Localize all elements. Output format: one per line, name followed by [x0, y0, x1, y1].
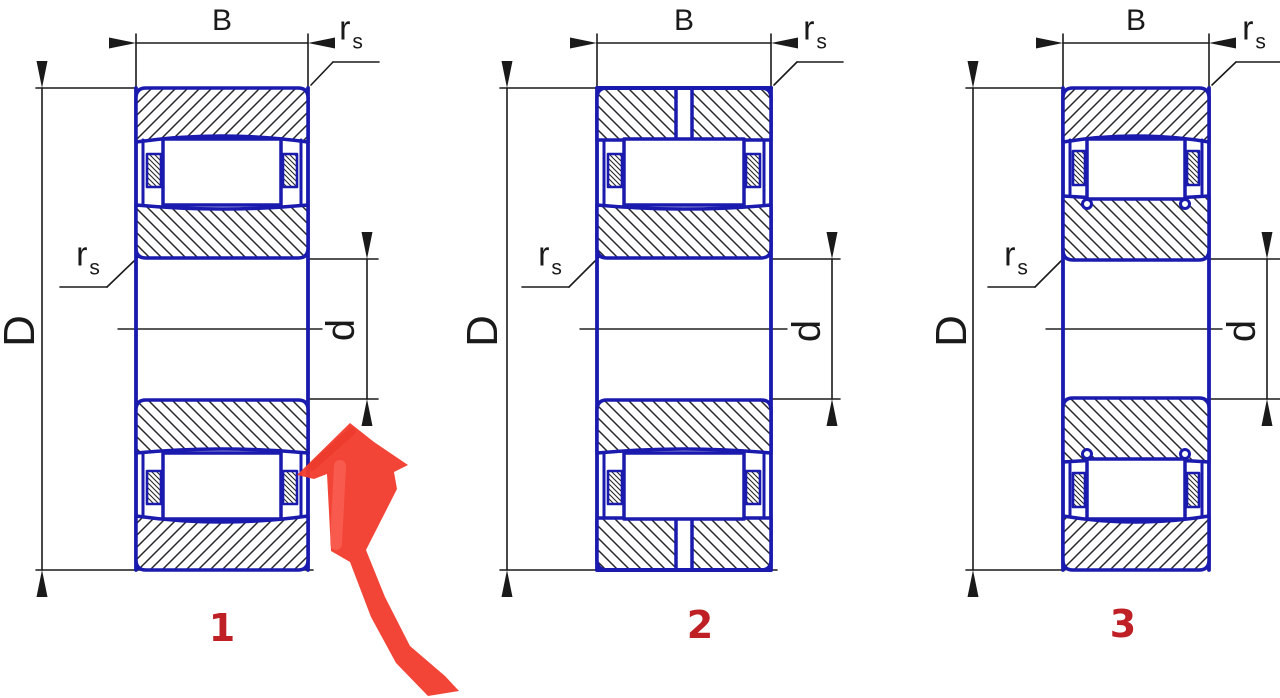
bore-diameter-label: d: [1222, 320, 1262, 342]
outer-diameter-label: D: [0, 315, 42, 347]
bearing-figure-3: [966, 34, 1280, 597]
bearing-figure-2: [500, 34, 843, 597]
fillet-radius-label-left: rs: [76, 238, 100, 279]
fillet-radius-label-top: rs: [339, 12, 363, 53]
width-dim-label: B: [1126, 6, 1146, 36]
bearing-figure-1: [36, 34, 379, 597]
fillet-radius-label-top: rs: [1242, 12, 1266, 53]
fillet-radius-label-left: rs: [1004, 238, 1028, 279]
figure-number: 1: [209, 609, 235, 647]
width-dim-label: B: [674, 6, 694, 36]
figure-number: 3: [1110, 605, 1136, 643]
bore-diameter-label: d: [787, 320, 827, 342]
bearing-types-diagram: B rs rs D d 1 B rs rs D d 2 B rs rs D d …: [0, 0, 1280, 698]
bore-diameter-label: d: [321, 319, 361, 341]
width-dim-label: B: [212, 6, 232, 36]
fillet-radius-label-left: rs: [538, 238, 562, 279]
outer-diameter-label: D: [461, 315, 505, 347]
fillet-radius-label-top: rs: [803, 12, 827, 53]
figure-number: 2: [687, 606, 713, 644]
bearing-cross-section-line-art: [0, 0, 1280, 698]
red-marker-arrow: [297, 423, 459, 696]
outer-diameter-label: D: [930, 315, 974, 347]
